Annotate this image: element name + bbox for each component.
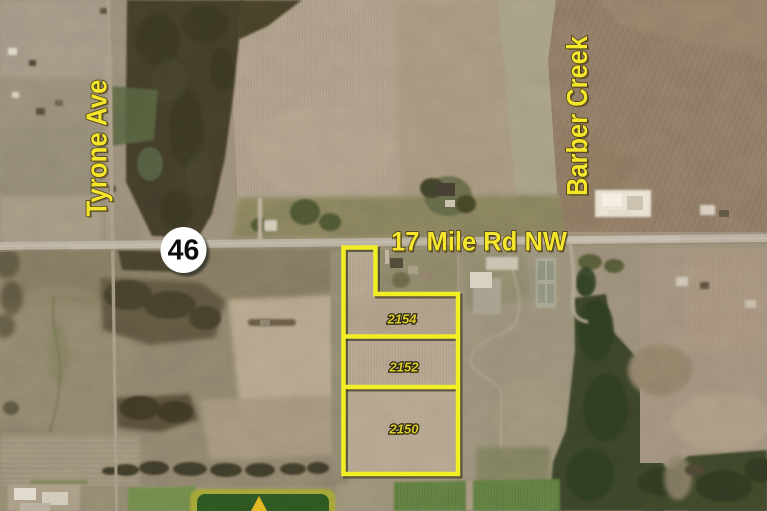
svg-text:2150: 2150: [389, 422, 420, 437]
svg-text:2152: 2152: [389, 360, 420, 375]
svg-text:2154: 2154: [387, 312, 418, 327]
svg-text:Tyrone Ave: Tyrone Ave: [82, 80, 114, 217]
svg-text:46: 46: [168, 235, 200, 267]
svg-text:17 Mile Rd NW: 17 Mile Rd NW: [391, 227, 567, 257]
svg-text:Barber Creek: Barber Creek: [562, 36, 594, 196]
